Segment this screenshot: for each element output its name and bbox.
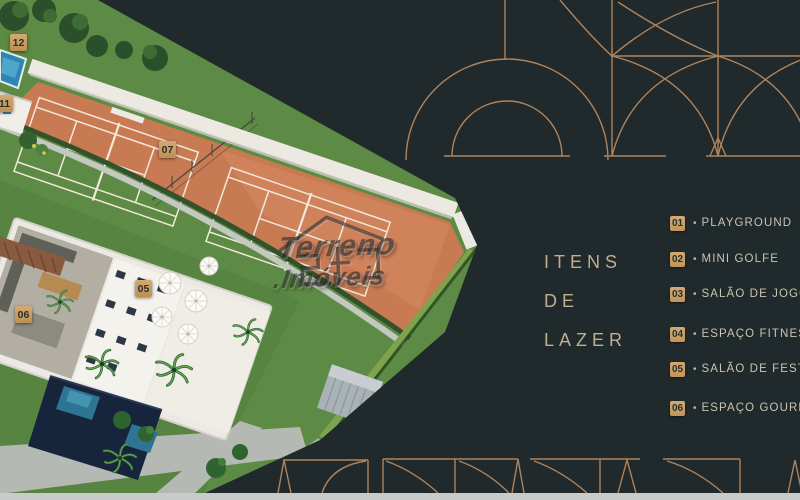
headline-itens-de-lazer: ITENS DE LAZER [544,243,627,360]
legend-item-mini-golfe: 02 • MINI GOLFE [670,251,779,267]
legend-bullet: • [693,329,697,340]
legend-number-badge: 01 [670,216,685,231]
legend-number-badge: 04 [670,327,685,342]
map-badge-05: 05 [135,280,152,297]
legend-label: ESPAÇO FITNESS [702,328,800,340]
legend-label: SALÃO DE FESTAS [702,363,800,375]
leisure-items-poster: Terreno .Imóveis 12 11 07 05 06 ITENS DE… [0,0,800,500]
legend-number-badge: 03 [670,287,685,302]
legend-bullet: • [693,403,697,414]
legend-bullet: • [693,218,697,229]
legend-number-badge: 06 [670,401,685,416]
headline-line-3: LAZER [544,321,627,360]
legend-label: ESPAÇO GOURMET [702,402,800,414]
legend-label: PLAYGROUND [702,217,793,229]
map-badge-12: 12 [10,34,27,51]
legend-bullet: • [693,289,697,300]
bottom-border [0,493,800,500]
legend-item-espaco-fitness: 04 • ESPAÇO FITNESS [670,326,800,342]
map-badge-07: 07 [159,141,176,158]
legend-item-playground: 01 • PLAYGROUND [670,215,792,231]
legend-item-salao-de-jogos: 03 • SALÃO DE JOGOS [670,286,800,302]
headline-line-1: ITENS [544,243,627,282]
headline-line-2: DE [544,282,627,321]
legend-item-espaco-gourmet: 06 • ESPAÇO GOURMET [670,400,800,416]
legend-number-badge: 02 [670,252,685,267]
map-badge-06: 06 [15,306,32,323]
legend-bullet: • [693,254,697,265]
legend-number-badge: 05 [670,362,685,377]
legend-label: MINI GOLFE [702,253,779,265]
site-render [0,0,800,500]
map-badge-11: 11 [0,95,13,112]
legend-item-salao-de-festas: 05 • SALÃO DE FESTAS [670,361,800,377]
legend-label: SALÃO DE JOGOS [702,288,800,300]
legend-bullet: • [693,364,697,375]
